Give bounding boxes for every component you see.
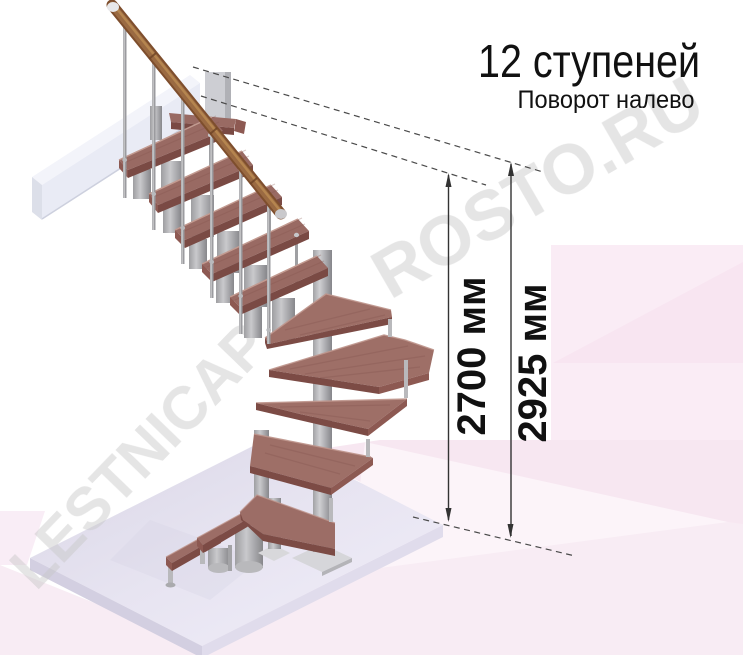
svg-text:2925 мм: 2925 мм [511, 283, 555, 442]
svg-text:Поворот налево: Поворот налево [518, 86, 695, 114]
svg-text:12 ступеней: 12 ступеней [478, 35, 700, 87]
svg-text:2700 мм: 2700 мм [450, 276, 494, 435]
